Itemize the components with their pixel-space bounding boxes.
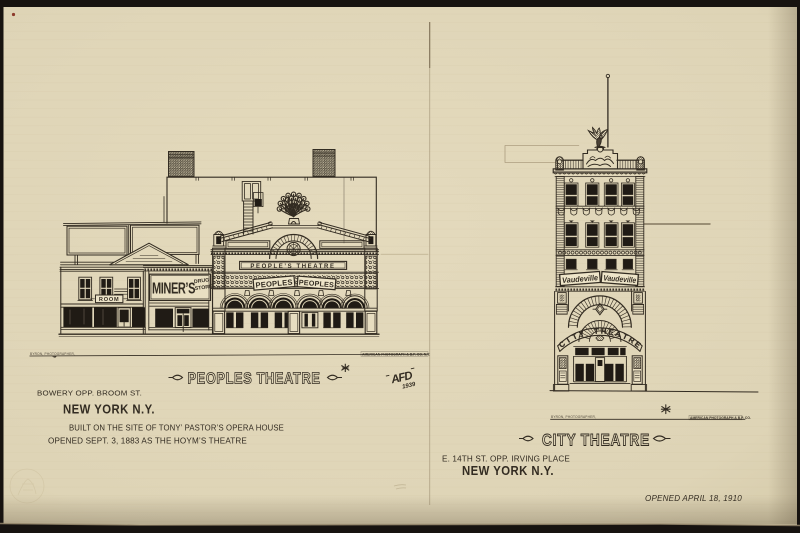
svg-text:BYRON, PHOTOGRAPHER,: BYRON, PHOTOGRAPHER, — [30, 352, 75, 356]
svg-text:BYRON, PHOTOGRAPHER,: BYRON, PHOTOGRAPHER, — [551, 415, 596, 419]
svg-text:PEOPLES THEATRE: PEOPLES THEATRE — [188, 371, 321, 388]
svg-text:PEOPLE’S THEATRE: PEOPLE’S THEATRE — [250, 264, 335, 270]
svg-text:AMERICAN PHOTOGRAPH & B.P. CO.: AMERICAN PHOTOGRAPH & B.P. CO. N.Y. — [362, 352, 430, 356]
svg-text:ROOM: ROOM — [99, 297, 120, 303]
svg-text:T: T — [594, 327, 600, 336]
svg-text:OPENED SEPT. 3, 1883 AS THE HO: OPENED SEPT. 3, 1883 AS THE HOYM’S THEAT… — [48, 436, 247, 445]
svg-text:AMERICAN PHOTOGRAPH & B.P. CO.: AMERICAN PHOTOGRAPH & B.P. CO. — [690, 416, 751, 420]
svg-text:NEW YORK N.Y.: NEW YORK N.Y. — [63, 403, 155, 417]
svg-text:E. 14TH ST. OPP. IRVING PLACE: E. 14TH ST. OPP. IRVING PLACE — [442, 454, 570, 463]
svg-text:NEW YORK N.Y.: NEW YORK N.Y. — [462, 464, 554, 478]
svg-text:CITY THEATRE: CITY THEATRE — [542, 432, 650, 450]
svg-text:MINER’S: MINER’S — [152, 281, 195, 298]
svg-text:H: H — [601, 327, 607, 336]
svg-text:BOWERY OPP. BROOM ST.: BOWERY OPP. BROOM ST. — [37, 389, 142, 398]
svg-text:BUILT ON THE SITE OF TONY’ PAS: BUILT ON THE SITE OF TONY’ PASTOR’S OPER… — [69, 424, 284, 433]
